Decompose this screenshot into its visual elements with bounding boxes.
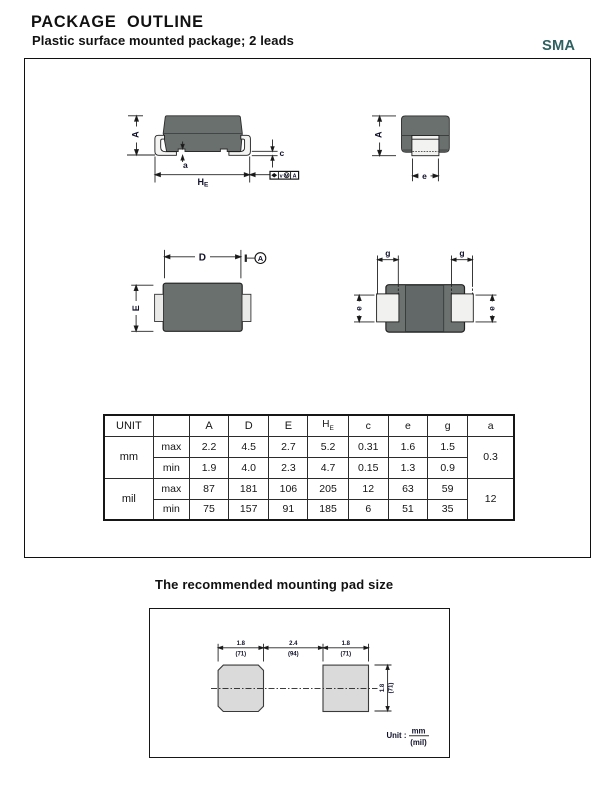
svg-text:v: v (280, 173, 283, 179)
svg-text:A: A (131, 131, 141, 138)
svg-text:2.4: 2.4 (289, 641, 298, 647)
svg-text:E: E (131, 305, 141, 311)
svg-text:a: a (183, 160, 188, 170)
svg-text:Unit :: Unit : (387, 731, 407, 740)
svg-text:e: e (354, 306, 364, 311)
svg-text:1.8: 1.8 (342, 641, 351, 647)
svg-text:1.8: 1.8 (380, 683, 386, 692)
svg-text:A: A (293, 173, 297, 179)
svg-text:A: A (374, 131, 384, 138)
svg-text:e: e (487, 306, 497, 311)
svg-text:(71): (71) (389, 683, 395, 694)
svg-text:A: A (258, 254, 264, 263)
svg-text:(71): (71) (235, 651, 246, 657)
svg-text:M: M (285, 173, 289, 178)
svg-text:(71): (71) (340, 651, 351, 657)
svg-text:D: D (199, 253, 206, 264)
svg-text:g: g (385, 248, 390, 258)
svg-text:mm: mm (412, 726, 426, 735)
svg-text:(94): (94) (288, 651, 299, 657)
svg-text:(mil): (mil) (410, 738, 427, 747)
svg-text:g: g (459, 248, 464, 258)
svg-text:1.8: 1.8 (237, 641, 246, 647)
svg-text:e: e (422, 171, 427, 181)
svg-text:HE: HE (198, 177, 210, 189)
svg-text:c: c (280, 148, 285, 158)
